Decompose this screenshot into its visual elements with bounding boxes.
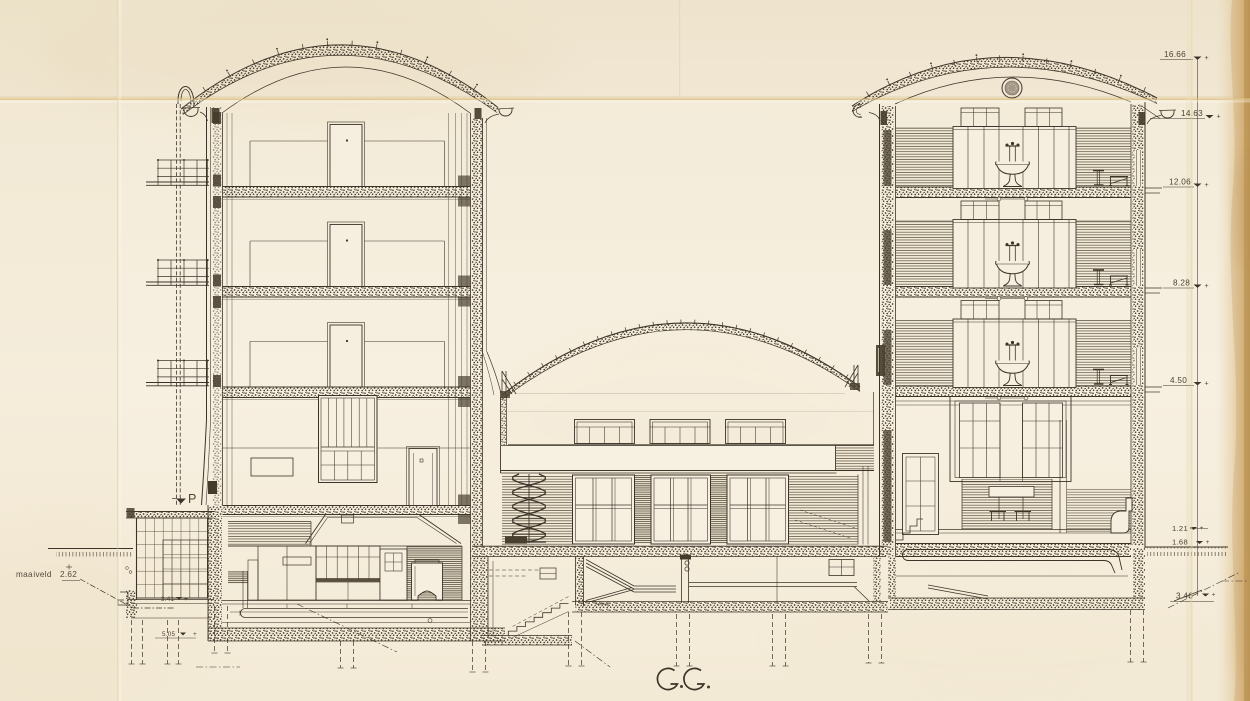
svg-text:+: + xyxy=(1217,114,1221,121)
svg-text:+: + xyxy=(1212,592,1216,599)
svg-text:+: + xyxy=(1200,525,1204,532)
svg-text:5.05: 5.05 xyxy=(162,631,176,638)
svg-text:+: + xyxy=(1205,381,1209,388)
svg-text:+: + xyxy=(184,596,188,603)
svg-text:+: + xyxy=(1206,539,1210,546)
svg-text:+: + xyxy=(1205,283,1209,290)
svg-text:1.21: 1.21 xyxy=(1172,524,1188,533)
svg-text:+: + xyxy=(1205,55,1209,62)
svg-text:12.06: 12.06 xyxy=(1169,178,1191,187)
svg-text:16.66: 16.66 xyxy=(1164,50,1186,59)
svg-text:1.68: 1.68 xyxy=(1172,538,1188,547)
svg-text:3.41: 3.41 xyxy=(161,596,175,603)
svg-text:8.28: 8.28 xyxy=(1173,279,1190,288)
svg-text:+: + xyxy=(193,631,197,638)
svg-text:P: P xyxy=(188,492,197,506)
svg-text:+: + xyxy=(1205,182,1209,189)
svg-text:4.50: 4.50 xyxy=(1170,376,1187,385)
svg-text:2.62: 2.62 xyxy=(60,570,77,579)
svg-text:maaiveld: maaiveld xyxy=(16,570,52,579)
